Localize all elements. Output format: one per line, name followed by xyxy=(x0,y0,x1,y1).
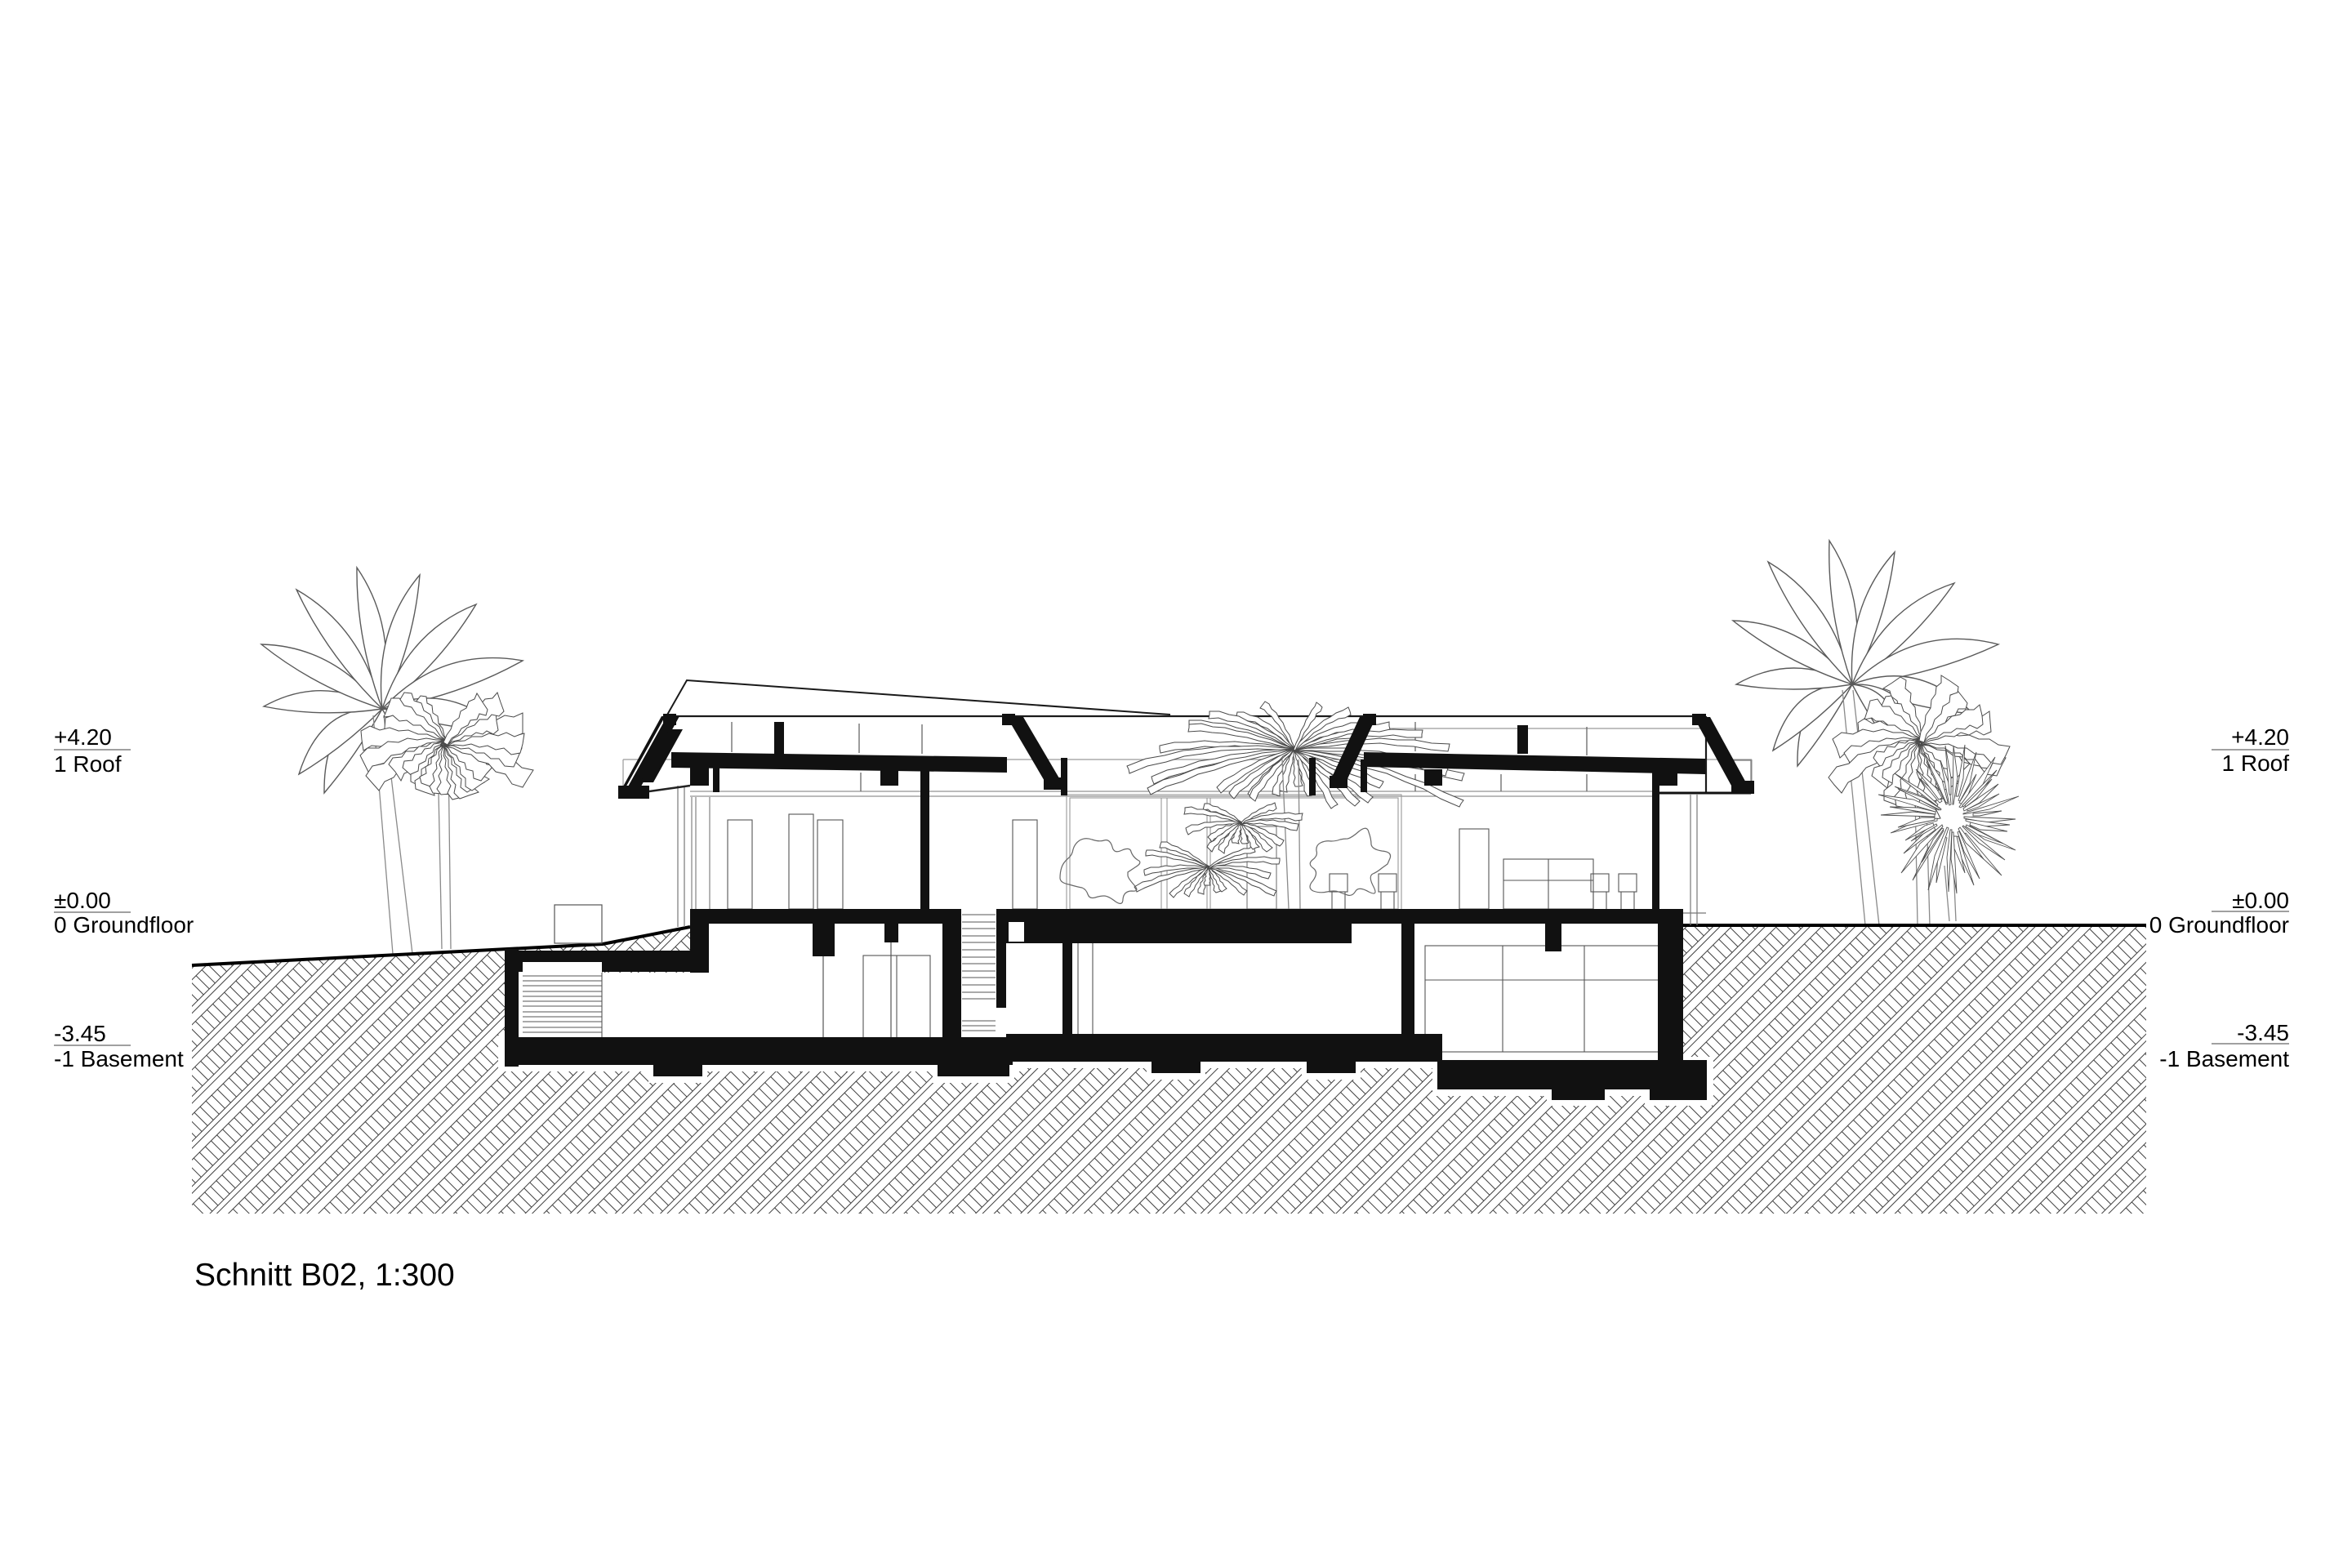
svg-text:-3.45: -3.45 xyxy=(2237,1020,2289,1045)
svg-text:-3.45: -3.45 xyxy=(54,1021,106,1046)
svg-text:±0.00: ±0.00 xyxy=(54,888,111,913)
svg-text:Schnitt B02, 1:300: Schnitt B02, 1:300 xyxy=(194,1258,455,1293)
svg-text:+4.20: +4.20 xyxy=(2231,724,2289,750)
svg-text:-1 Basement: -1 Basement xyxy=(54,1046,184,1071)
svg-text:0 Groundfloor: 0 Groundfloor xyxy=(2149,912,2289,938)
svg-text:0 Groundfloor: 0 Groundfloor xyxy=(54,912,194,938)
svg-text:1 Roof: 1 Roof xyxy=(54,751,122,777)
svg-text:-1 Basement: -1 Basement xyxy=(2159,1046,2289,1071)
svg-text:+4.20: +4.20 xyxy=(54,724,112,750)
svg-text:±0.00: ±0.00 xyxy=(2232,888,2289,913)
svg-text:1 Roof: 1 Roof xyxy=(2222,751,2290,776)
